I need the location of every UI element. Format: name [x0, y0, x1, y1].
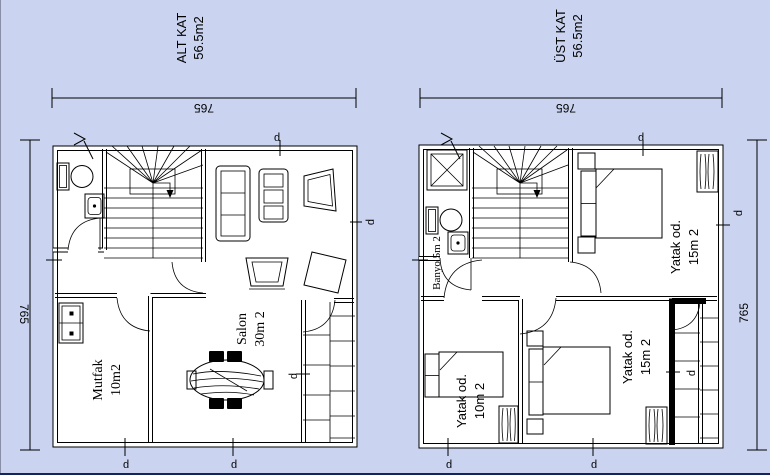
- bedroom-label: Yatak od.: [454, 374, 469, 428]
- dining-chair: [209, 398, 224, 409]
- dining-chair: [227, 398, 242, 409]
- dimension-top-ust: 765: [420, 88, 722, 115]
- bedroom-area-label: 10m 2: [472, 383, 487, 419]
- dining-chair: [227, 351, 242, 362]
- floor-plan-drawing: ALT KAT 56.5m2 765 765: [0, 0, 770, 475]
- dim-height-label: 765: [17, 304, 31, 324]
- dimension-left-alt: 765: [17, 140, 40, 450]
- dim-width-label: 765: [556, 101, 576, 115]
- plan-title: ÜST KAT: [553, 9, 568, 63]
- window-marker: p: [288, 373, 300, 379]
- plan-title: ALT KAT: [174, 13, 189, 64]
- dimension-right-ust: 765: [737, 140, 767, 450]
- bedroom-label: Yatak od.: [668, 220, 683, 274]
- plan-area: 56.5m2: [191, 16, 206, 59]
- dim-width-label: 765: [194, 101, 214, 115]
- floor-plan-alt-kat: ALT KAT 56.5m2 765 765: [17, 13, 377, 471]
- window-marker: p: [123, 459, 129, 471]
- bedroom-area-label: 15m 2: [638, 339, 653, 375]
- title-ust-kat: ÜST KAT 56.5m2: [553, 9, 585, 63]
- window-marker: p: [365, 219, 377, 225]
- bedroom-area-label: 15m 2: [686, 229, 701, 265]
- bedroom-label: Yatak od.: [620, 330, 635, 384]
- dim-height-label: 765: [737, 303, 751, 323]
- window-marker: p: [274, 132, 280, 144]
- window-marker: p: [231, 459, 237, 471]
- living-area-label: 30m 2: [253, 311, 268, 346]
- window-marker: p: [446, 459, 452, 471]
- plan-body-alt: [53, 146, 357, 447]
- plan-area: 56.5m2: [570, 14, 585, 57]
- kitchen-label: Mutfak: [91, 359, 106, 400]
- dining-chair: [209, 351, 224, 362]
- cad-canvas: ALT KAT 56.5m2 765 765: [0, 0, 770, 475]
- floor-plan-ust-kat: ÜST KAT 56.5m2 765 765: [412, 9, 767, 471]
- window-marker: p: [638, 132, 644, 144]
- title-alt-kat: ALT KAT 56.5m2: [174, 13, 206, 64]
- dimension-top-alt: 765: [52, 88, 356, 115]
- bathroom-label: Banyo 5m 2: [431, 236, 443, 290]
- window-marker: p: [733, 210, 745, 216]
- living-label: Salon: [235, 313, 250, 345]
- window-marker: p: [686, 370, 698, 376]
- kitchen-area-label: 10m2: [109, 364, 124, 396]
- window-marker: p: [591, 459, 597, 471]
